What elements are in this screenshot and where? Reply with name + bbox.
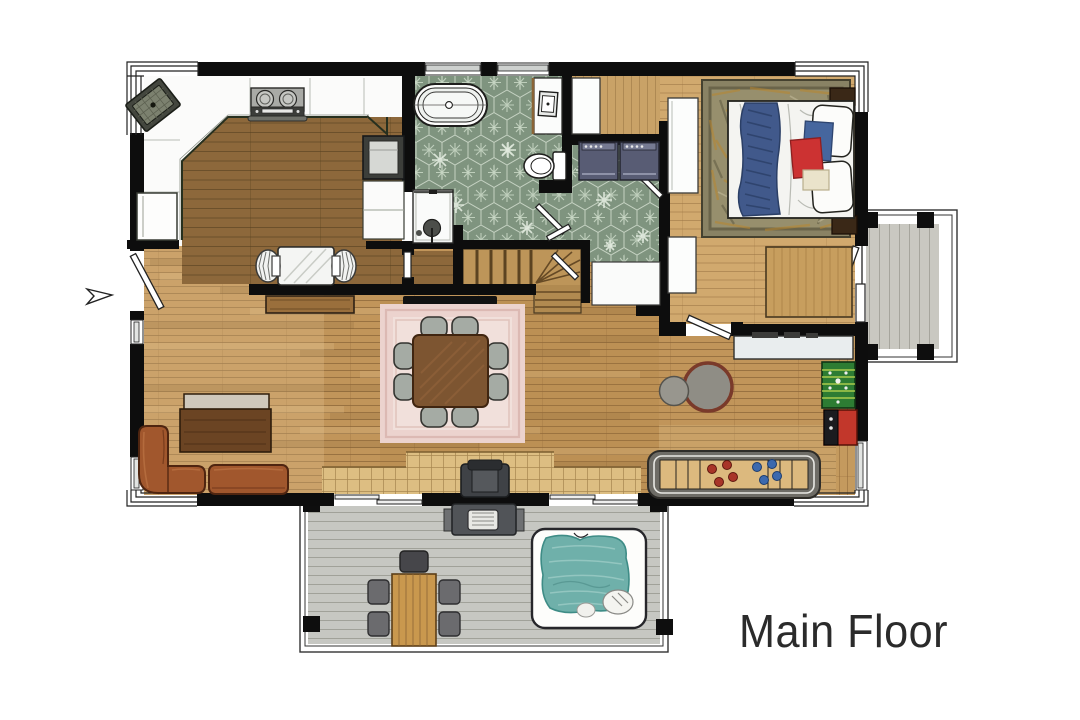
svg-text:Main Floor: Main Floor bbox=[739, 605, 948, 657]
